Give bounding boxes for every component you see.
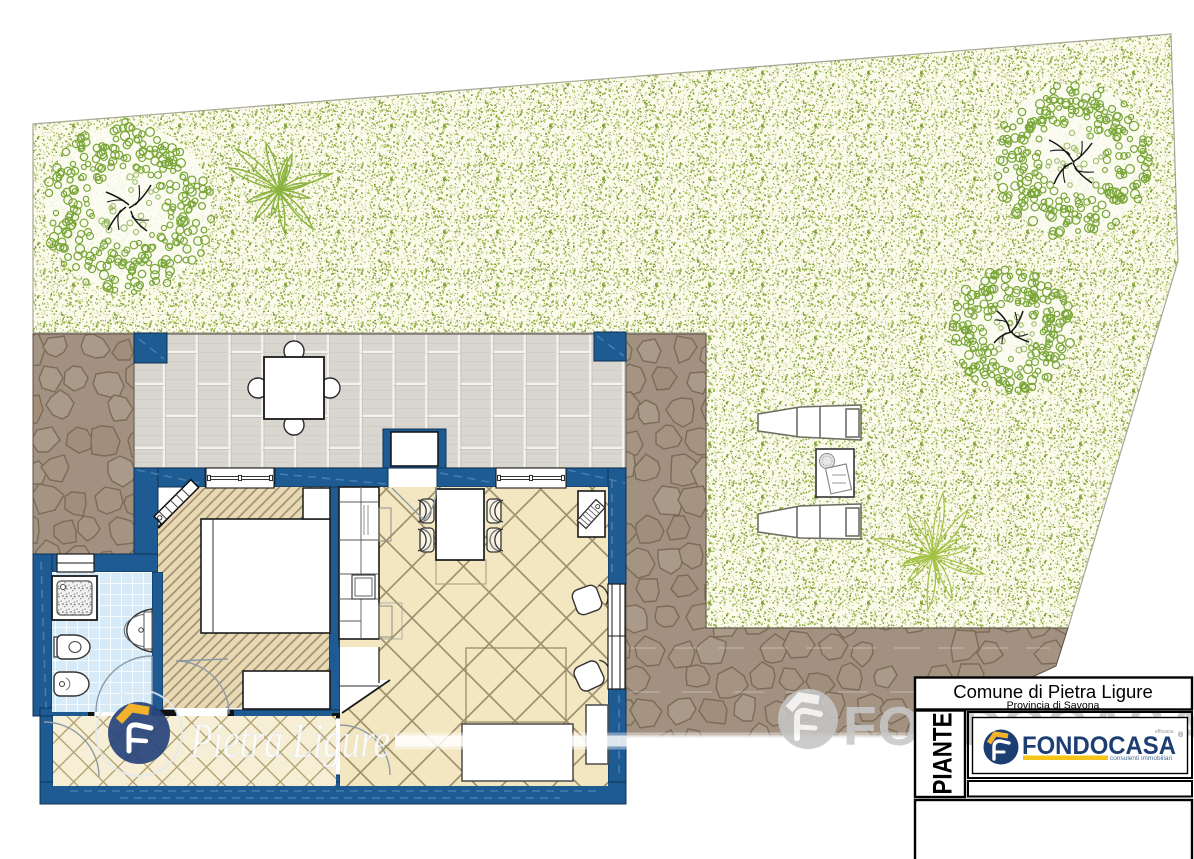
- svg-text:PIANTE: PIANTE: [928, 713, 958, 795]
- svg-text:Provincia di Savona: Provincia di Savona: [1007, 700, 1100, 712]
- svg-text:®: ®: [1178, 731, 1184, 739]
- svg-text:consulenti immobiliari: consulenti immobiliari: [1110, 755, 1172, 762]
- svg-text:Pietra Ligure: Pietra Ligure: [189, 712, 390, 768]
- svg-text:efficacia: efficacia: [1155, 729, 1173, 735]
